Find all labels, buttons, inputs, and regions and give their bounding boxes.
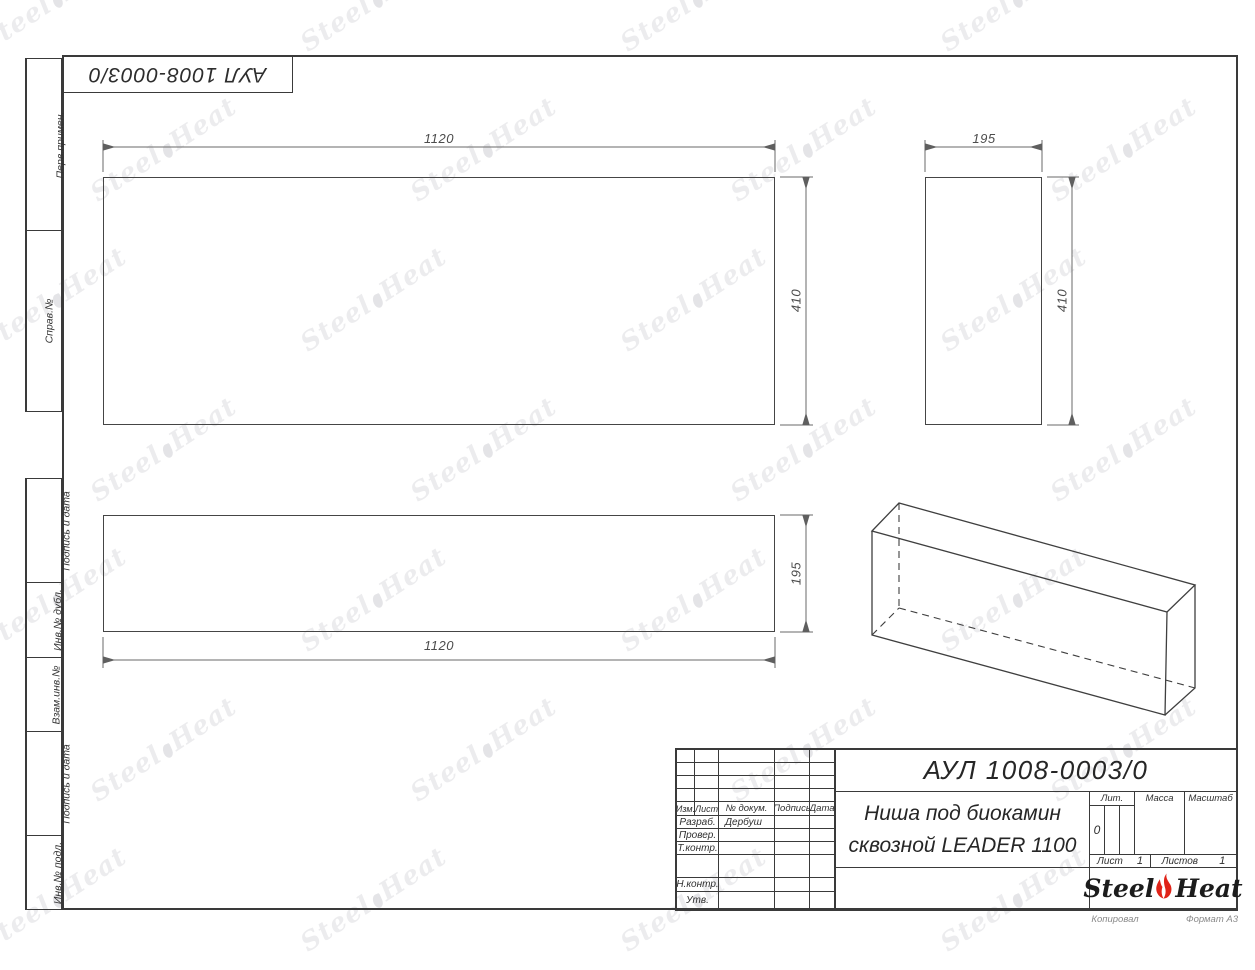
row-label: Н.контр.: [677, 878, 719, 892]
row-value: Дербуш: [719, 816, 775, 829]
revision-cell: [719, 776, 775, 789]
sidebar-section-perv-primen: Перв.примен.: [26, 59, 61, 231]
part-name-line1: Ниша под биокамин: [864, 798, 1061, 830]
revision-cell: [719, 789, 775, 802]
sidebar-label: Инв.№ дубл.: [52, 589, 64, 651]
row-value: [719, 892, 775, 909]
dim-side-width: 195: [948, 131, 1020, 146]
scale-cell: Масштаб: [1185, 792, 1236, 854]
title-block: Изм. Лист № докум. Подпись Дата Разраб. …: [675, 748, 1238, 911]
revision-cell: [677, 776, 695, 789]
row-date-cell: [810, 878, 835, 892]
logo-word-steel: Steel: [1083, 874, 1154, 903]
lit-cell-3: [1120, 806, 1135, 854]
top-view-outline: [103, 515, 775, 632]
lit-header: Лит.: [1090, 792, 1135, 806]
part-name-line2: сквозной LEADER 1100: [849, 830, 1077, 862]
sidebar-label: Подпись и дата: [61, 491, 73, 570]
row-label: Утв.: [677, 892, 719, 909]
header-podpis: Подпись: [775, 802, 810, 816]
rotated-docnum-text: АУЛ 1008-0003/0: [88, 62, 266, 86]
sidebar-lower-block: Подпись и дата Инв.№ дубл. Взам.инв.№ По…: [25, 478, 62, 910]
row-date-cell: [810, 829, 835, 842]
titleblock-doc-number: АУЛ 1008-0003/0: [836, 750, 1236, 792]
rotated-docnum-box: АУЛ 1008-0003/0: [62, 55, 293, 93]
table-row-empty: [677, 855, 835, 878]
sidebar-section-podpis-data-1: Подпись и дата: [26, 479, 61, 583]
part-name-cell: Ниша под биокамин сквозной LEADER 1100: [836, 792, 1090, 868]
sidebar-label: Перв.примен.: [54, 111, 66, 178]
table-row-razrab: Разраб. Дербуш: [677, 816, 835, 829]
titleblock-right-block: Лит. 0 Масса Масштаб Лист 1 Листов 1 Ste…: [1090, 792, 1236, 909]
revision-cell: [695, 776, 719, 789]
row-value: [719, 878, 775, 892]
watermark-text: SteelHeat: [0, 0, 132, 58]
sheets-label: Листов: [1162, 856, 1198, 867]
dim-top-width: 1120: [403, 638, 475, 653]
logo-word-heat: Heat: [1175, 874, 1242, 903]
logo-cell: Steel Heat: [1090, 868, 1236, 909]
row-value: [719, 842, 775, 855]
row-sign-cell: [775, 892, 810, 909]
watermark-flame-icon: [1011, 0, 1025, 9]
sidebar-label: Инв.№ подл.: [52, 841, 64, 903]
dim-top-depth: 195: [789, 554, 804, 594]
revision-cell: [719, 763, 775, 776]
header-list: Лист: [695, 802, 719, 816]
lit-cell-2: [1105, 806, 1120, 854]
header-izm: Изм.: [677, 802, 695, 816]
watermark-flame-icon: [691, 0, 705, 9]
revision-cell: [810, 763, 835, 776]
revision-cell: [719, 750, 775, 763]
sidebar-section-vzam-inv: Взам.инв.№: [26, 658, 61, 732]
sidebar-label: Взам.инв.№: [51, 665, 63, 724]
row-label: Т.контр.: [677, 842, 719, 855]
dim-front-width: 1120: [403, 131, 475, 146]
revision-cell: [775, 776, 810, 789]
sidebar-upper-block: Перв.примен. Справ.№: [25, 58, 62, 412]
side-view-outline: [925, 177, 1042, 425]
table-row-nkontr: Н.контр.: [677, 878, 835, 892]
sheets-total: 1: [1219, 855, 1225, 867]
row-date-cell: [810, 892, 835, 909]
revision-cell: [810, 776, 835, 789]
sheet-label: Лист: [1097, 856, 1123, 867]
watermark-text: SteelHeat: [615, 0, 772, 58]
steelheat-logo: Steel Heat: [1083, 872, 1242, 905]
row-sign-cell: [775, 829, 810, 842]
sidebar-section-podpis-data-2: Подпись и дата: [26, 732, 61, 836]
revision-rows: [677, 750, 835, 802]
watermark-flame-icon: [51, 0, 65, 9]
header-data: Дата: [810, 802, 835, 816]
revision-cell: [775, 750, 810, 763]
header-ndokum: № докум.: [719, 802, 775, 816]
row-sign-cell: [775, 842, 810, 855]
sidebar-section-sprav-n: Справ.№: [26, 231, 61, 411]
row-value: [719, 829, 775, 842]
table-header-row: Изм. Лист № докум. Подпись Дата: [677, 802, 835, 816]
revision-cell: [677, 750, 695, 763]
row-sign-cell: [775, 816, 810, 829]
watermark-text: SteelHeat: [295, 0, 452, 58]
table-row-tkontr: Т.контр.: [677, 842, 835, 855]
dim-front-height: 410: [789, 281, 804, 321]
watermark-flame-icon: [371, 0, 385, 9]
revision-cell: [695, 789, 719, 802]
row-date-cell: [810, 855, 835, 878]
revision-cell: [677, 789, 695, 802]
revision-cell: [775, 789, 810, 802]
company-cell-empty: [836, 868, 1090, 909]
row-value: [719, 855, 775, 878]
sidebar-label: Подпись и дата: [61, 744, 73, 823]
lit-cell-1: 0: [1090, 806, 1105, 854]
sidebar-section-inv-podl: Инв.№ подл.: [26, 836, 61, 909]
row-label: Разраб.: [677, 816, 719, 829]
watermark-text: SteelHeat: [935, 0, 1092, 58]
revision-cell: [695, 750, 719, 763]
front-view-outline: [103, 177, 775, 425]
table-row-prover: Провер.: [677, 829, 835, 842]
row-sign-cell: [775, 878, 810, 892]
sheet-number: 1: [1137, 855, 1143, 867]
row-date-cell: [810, 842, 835, 855]
table-row-utv: Утв.: [677, 892, 835, 909]
mass-cell: Масса: [1135, 792, 1185, 854]
format-label: Формат А3: [1178, 914, 1238, 925]
revision-cell: [677, 763, 695, 776]
revision-cell: [775, 763, 810, 776]
row-label: Провер.: [677, 829, 719, 842]
sidebar-label: Справ.№: [43, 299, 55, 344]
revision-cell: [810, 750, 835, 763]
dim-side-height: 410: [1055, 281, 1070, 321]
sheets-total-cell: Листов 1: [1151, 854, 1236, 868]
sidebar-section-inv-dubl: Инв.№ дубл.: [26, 583, 61, 658]
row-sign-cell: [775, 855, 810, 878]
revision-cell: [810, 789, 835, 802]
row-date-cell: [810, 816, 835, 829]
title-block-left-table: Изм. Лист № докум. Подпись Дата Разраб. …: [677, 750, 836, 909]
row-label: [677, 855, 719, 878]
sheet-cell: Лист 1: [1090, 854, 1151, 868]
revision-cell: [695, 763, 719, 776]
copied-label: Копировал: [1075, 914, 1155, 925]
